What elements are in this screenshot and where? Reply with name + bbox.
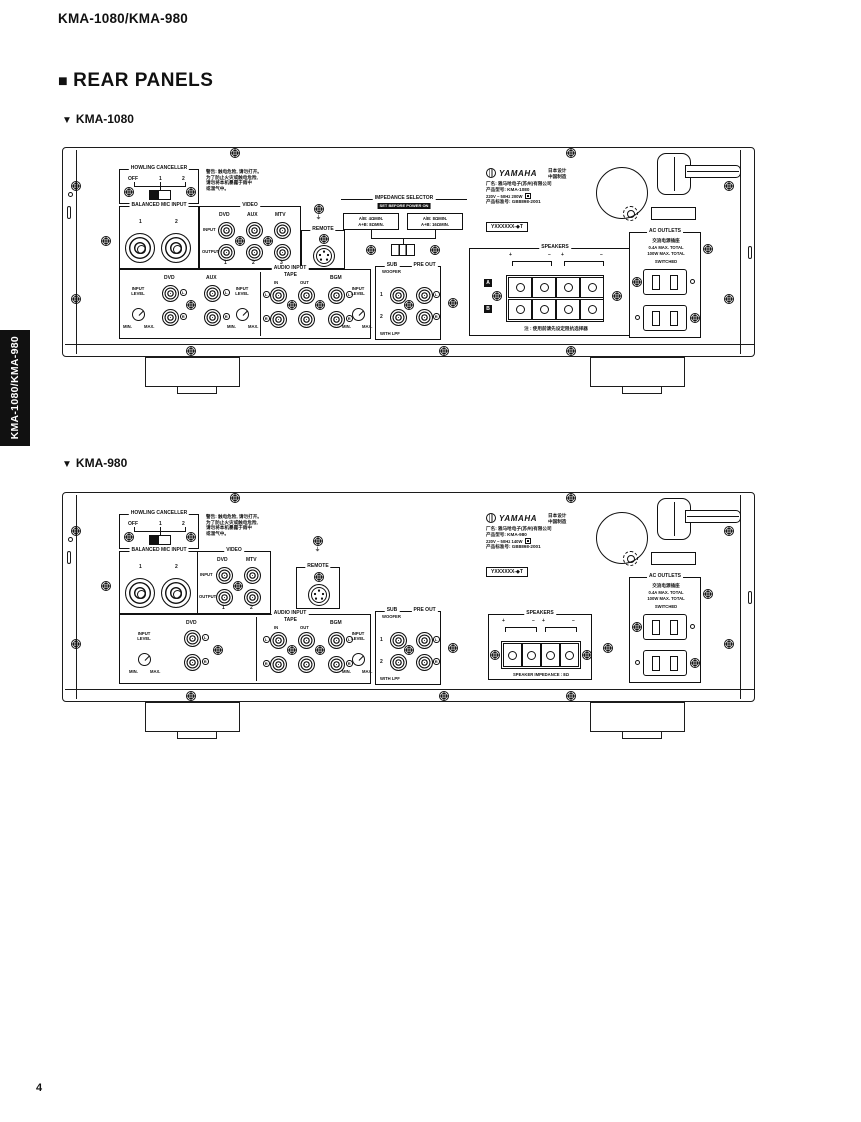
tape-out-jack-l bbox=[298, 632, 315, 649]
subwoofer-jack-2 bbox=[390, 654, 407, 671]
ground-screw-icon bbox=[313, 536, 323, 546]
min-label: MIN. bbox=[227, 324, 236, 329]
screw-icon bbox=[263, 236, 273, 246]
input-level-line: INPUT bbox=[236, 286, 249, 291]
polarity-bracket bbox=[545, 627, 577, 633]
subwoofer-preout-section: SUB WOOFER PRE OUT 1 2 L R WITH LPF bbox=[375, 266, 441, 340]
ac-switched-label: SWITCHED bbox=[630, 259, 702, 264]
square-bullet-icon: ■ bbox=[58, 73, 68, 90]
rail-slot bbox=[67, 551, 71, 564]
ac-max-power: 100W MAX. TOTAL bbox=[630, 251, 702, 256]
outlet-hole bbox=[690, 624, 695, 629]
mic-jack-1-label: 1 bbox=[139, 219, 142, 225]
input-level-line: INPUT bbox=[352, 286, 365, 291]
tape-in-jack-l bbox=[270, 287, 287, 304]
company-line: 厂名: 雅马哈电子(苏州)有限公司 bbox=[486, 181, 552, 187]
screw-icon bbox=[287, 645, 297, 655]
max-label: MAX. bbox=[248, 324, 258, 329]
impedance-note-badge: SET BEFORE POWER ON bbox=[378, 203, 431, 209]
speaker-terminal bbox=[508, 277, 532, 298]
bgm-input-level-knob bbox=[352, 653, 365, 666]
ground-symbol-icon: ⏚ bbox=[316, 215, 321, 221]
screw-icon bbox=[566, 691, 576, 701]
video-row-input: INPUT bbox=[203, 227, 216, 232]
mic-phone-jack-1 bbox=[125, 233, 155, 263]
sub-woofer-title: SUB bbox=[385, 263, 400, 268]
channel-l-marker: L bbox=[180, 289, 187, 296]
video-col-dvd: DVD bbox=[217, 557, 228, 563]
warning-line: 或湿气中。 bbox=[206, 186, 306, 192]
video-col-aux: AUX bbox=[247, 212, 258, 218]
speakers-section: SPEAKERS + − + − SPEAKER IMPEDANCE : 8Ω bbox=[488, 614, 592, 680]
screw-icon bbox=[230, 148, 240, 158]
channel-l-marker: L bbox=[202, 634, 209, 641]
rating-label: YAMAHA 日本设计 中国制造 厂名: 雅马哈电子(苏州)有限公司 产品型号:… bbox=[486, 168, 616, 238]
tape-in-jack-r bbox=[270, 656, 287, 673]
subwoofer-jack-1 bbox=[390, 287, 407, 304]
speaker-terminal bbox=[556, 299, 580, 320]
section-title-text: REAR PANELS bbox=[73, 70, 213, 91]
input-level-line: INPUT bbox=[132, 286, 145, 291]
video-output-jack bbox=[216, 589, 233, 606]
sub-woofer-title: SUB bbox=[385, 608, 400, 613]
cable-clamp-line bbox=[687, 171, 739, 172]
screw-icon bbox=[319, 234, 329, 244]
dvd-input-level-knob bbox=[138, 653, 151, 666]
preout-jack-l bbox=[416, 287, 433, 304]
screw-icon bbox=[314, 572, 324, 582]
screw-icon bbox=[366, 245, 376, 255]
switch-guide-line bbox=[185, 527, 186, 531]
video-output-jack bbox=[244, 589, 261, 606]
audio-col-tape: TAPE bbox=[284, 272, 297, 278]
impedance-option-right: A/B: 8ΩMIN. A+B: 16ΩMIN. bbox=[407, 213, 463, 230]
switch-guide-line bbox=[185, 182, 186, 186]
cable-clamp bbox=[643, 496, 753, 546]
speaker-terminal bbox=[532, 299, 556, 320]
input-level-line: LEVEL bbox=[351, 636, 365, 641]
audio-col-dvd: DVD bbox=[164, 275, 175, 281]
bgm-input-level-knob bbox=[352, 308, 365, 321]
audio-col-bgm: BGM bbox=[330, 275, 342, 281]
ac-outlet-2 bbox=[643, 305, 687, 331]
input-level-label: INPUTLEVEL bbox=[348, 286, 368, 297]
switch-pos-off: OFF bbox=[128, 176, 138, 182]
channel-r-marker: R bbox=[180, 313, 187, 320]
screw-icon bbox=[490, 650, 500, 660]
subwoofer-1-label: 1 bbox=[380, 637, 383, 643]
mic-phone-jack-2 bbox=[161, 233, 191, 263]
screw-icon bbox=[101, 236, 111, 246]
screw-icon bbox=[492, 291, 502, 301]
howling-canceller-section: HOWLING CANCELLER OFF 1 2 bbox=[119, 514, 199, 549]
screw-icon bbox=[233, 581, 243, 591]
balanced-mic-input-title: BALANCED MIC INPUT bbox=[130, 548, 189, 553]
screw-icon bbox=[430, 245, 440, 255]
screw-icon bbox=[186, 691, 196, 701]
subwoofer-jack-1 bbox=[390, 632, 407, 649]
video-output-jack bbox=[274, 244, 291, 261]
screw-icon bbox=[690, 313, 700, 323]
outlet-hole bbox=[690, 279, 695, 284]
polarity-bracket bbox=[505, 627, 537, 633]
switch-guide-line bbox=[134, 182, 135, 186]
input-level-line: LEVEL bbox=[351, 291, 365, 296]
with-lpf-label: WITH LPF bbox=[380, 331, 400, 336]
yamaha-logo-icon bbox=[486, 168, 496, 178]
screw-icon bbox=[690, 658, 700, 668]
sidebar-model-tab: KMA-1080/KMA-980 bbox=[0, 330, 30, 446]
sub-woofer-title2: WOOFER bbox=[382, 269, 401, 274]
mic-jack-2-label: 2 bbox=[175, 219, 178, 225]
video-section: VIDEO DVD AUX MTV INPUT OUTPUT 1 2 3 bbox=[199, 206, 301, 269]
ac-max-current: 0.4A MAX. TOTAL bbox=[630, 245, 702, 250]
impedance-guide-line bbox=[435, 230, 436, 238]
channel-r-marker: R bbox=[433, 658, 440, 665]
subwoofer-1-label: 1 bbox=[380, 292, 383, 298]
bgm-audio-jack-l bbox=[328, 287, 345, 304]
speakers-section: SPEAKERS + − + − A B 注 : 使用前请先设定阻抗选择器 bbox=[469, 248, 641, 336]
video-row-input: INPUT bbox=[200, 572, 213, 577]
channel-l-marker: L bbox=[433, 291, 440, 298]
polarity-bracket bbox=[512, 261, 552, 267]
remote-section: REMOTE bbox=[301, 230, 345, 269]
speaker-terminal bbox=[580, 277, 604, 298]
foot bbox=[590, 357, 685, 387]
cable-clamp-line bbox=[674, 157, 675, 191]
ac-max-power: 100W MAX. TOTAL bbox=[630, 596, 702, 601]
speaker-terminal bbox=[532, 277, 556, 298]
balanced-mic-input-section: BALANCED MIC INPUT 1 2 bbox=[119, 551, 199, 614]
channel-l-marker: L bbox=[433, 636, 440, 643]
polarity-bracket bbox=[564, 261, 604, 267]
vent-hole bbox=[596, 167, 648, 219]
max-label: MAX. bbox=[144, 324, 154, 329]
tape-out-jack-r bbox=[298, 656, 315, 673]
screw-icon bbox=[566, 493, 576, 503]
impedance-selector-section: IMPEDANCE SELECTOR SET BEFORE POWER ON A… bbox=[341, 196, 467, 258]
channel-r-marker: R bbox=[433, 313, 440, 320]
audio-col-aux: AUX bbox=[206, 275, 217, 281]
sub-woofer-title2: WOOFER bbox=[382, 614, 401, 619]
panel-label-text: KMA-1080 bbox=[76, 112, 134, 126]
channel-r-marker: R bbox=[202, 658, 209, 665]
page-header: KMA-1080/KMA-980 bbox=[58, 11, 188, 26]
polarity-minus: − bbox=[600, 252, 603, 258]
screw-icon bbox=[124, 187, 134, 197]
brand-wordmark: YAMAHA bbox=[499, 514, 537, 523]
foot bbox=[145, 702, 240, 732]
polarity-plus: + bbox=[561, 252, 564, 258]
screw-icon bbox=[724, 294, 734, 304]
subwoofer-2-label: 2 bbox=[380, 659, 383, 665]
video-row-output: OUTPUT bbox=[199, 594, 216, 599]
video-output-jack bbox=[218, 244, 235, 261]
screw-icon bbox=[612, 291, 622, 301]
chassis-outline: HOWLING CANCELLER OFF 1 2 警告: 触电危险, 请勿打开… bbox=[62, 492, 755, 702]
ac-outlets-section: AC OUTLETS 交流电源插座 0.4A MAX. TOTAL 100W M… bbox=[629, 232, 701, 338]
screw-icon bbox=[632, 622, 642, 632]
screw-icon bbox=[315, 645, 325, 655]
ac-switched-label: SWITCHED bbox=[630, 604, 702, 609]
min-label: MIN. bbox=[342, 324, 351, 329]
video-output-jack bbox=[246, 244, 263, 261]
divider-line bbox=[260, 272, 261, 336]
mic-jack-2-label: 2 bbox=[175, 564, 178, 570]
switch-pos-off: OFF bbox=[128, 521, 138, 527]
screw-icon bbox=[448, 298, 458, 308]
tape-in-label: IN bbox=[274, 625, 278, 630]
impedance-option-line: A+B: 16ΩMIN. bbox=[408, 222, 462, 228]
sidebar-model-tab-text: KMA-1080/KMA-980 bbox=[9, 336, 21, 439]
ac-outlet-1 bbox=[643, 614, 687, 640]
screw-icon bbox=[703, 244, 713, 254]
input-level-line: LEVEL bbox=[131, 291, 145, 296]
screw-icon bbox=[186, 346, 196, 356]
screw-icon bbox=[101, 581, 111, 591]
aux-input-level-knob bbox=[236, 308, 249, 321]
video-out-2: 2 bbox=[252, 260, 255, 266]
screw-icon bbox=[71, 526, 81, 536]
tape-out-jack-r bbox=[298, 311, 315, 328]
video-row-output: OUTPUT bbox=[202, 249, 219, 254]
rail-slot bbox=[67, 206, 71, 219]
dvd-audio-jack-r bbox=[162, 309, 179, 326]
video-out-2: 2 bbox=[250, 605, 253, 611]
channel-r-marker: R bbox=[223, 313, 230, 320]
vent-hole bbox=[596, 512, 648, 564]
page-number: 4 bbox=[36, 1082, 42, 1094]
outlet-hole bbox=[635, 315, 640, 320]
input-level-label: INPUTLEVEL bbox=[348, 631, 368, 642]
polarity-minus: − bbox=[532, 618, 535, 624]
preout-jack-r bbox=[416, 654, 433, 671]
rail-hole bbox=[68, 537, 73, 542]
ac-outlet-1 bbox=[643, 269, 687, 295]
audio-input-title: AUDIO INPUT bbox=[272, 266, 309, 271]
screw-icon bbox=[703, 589, 713, 599]
polarity-plus: + bbox=[509, 252, 512, 258]
balanced-mic-input-section: BALANCED MIC INPUT 1 2 bbox=[119, 206, 199, 269]
screw-icon bbox=[566, 346, 576, 356]
rail-slot bbox=[748, 246, 752, 259]
section-title: ■REAR PANELS bbox=[58, 70, 213, 92]
aux-audio-jack-r bbox=[204, 309, 221, 326]
panel-label-text: KMA-980 bbox=[76, 456, 127, 470]
blank-label bbox=[651, 207, 696, 220]
speaker-terminal bbox=[541, 643, 560, 667]
blank-label bbox=[651, 552, 696, 565]
screw-icon bbox=[287, 300, 297, 310]
screw-icon bbox=[124, 532, 134, 542]
foot-pad bbox=[177, 386, 217, 394]
video-section: VIDEO DVD MTV INPUT OUTPUT 1 2 bbox=[197, 551, 271, 614]
input-level-line: INPUT bbox=[138, 631, 151, 636]
audio-col-dvd: DVD bbox=[186, 620, 197, 626]
kma980-rear-panel-diagram: HOWLING CANCELLER OFF 1 2 警告: 触电危险, 请勿打开… bbox=[62, 492, 759, 744]
speaker-terminal bbox=[556, 277, 580, 298]
video-col-dvd: DVD bbox=[219, 212, 230, 218]
channel-r-marker: R bbox=[263, 660, 270, 667]
made-in-line: 中国制造 bbox=[548, 519, 566, 525]
ac-outlets-title: AC OUTLETS bbox=[647, 229, 683, 234]
safety-warning-text: 警告: 触电危险, 请勿打开。 为了防止火灾或触电危险, 请勿将本机暴露于雨中 … bbox=[206, 169, 306, 192]
with-lpf-label: WITH LPF bbox=[380, 676, 400, 681]
speaker-group-a-label: A bbox=[484, 279, 492, 287]
speaker-terminal bbox=[522, 643, 541, 667]
kma1080-rear-panel-diagram: HOWLING CANCELLER OFF 1 2 警告: 触电危险, 请勿打开… bbox=[62, 147, 759, 399]
cable-clamp-line bbox=[674, 502, 675, 536]
max-label: MAX. bbox=[362, 324, 372, 329]
speaker-terminal bbox=[508, 299, 532, 320]
howling-canceller-title: HOWLING CANCELLER bbox=[129, 511, 189, 516]
audio-input-section: AUDIO INPUT INPUTLEVEL MIN. MAX. DVD L R… bbox=[119, 269, 371, 339]
video-input-jack bbox=[218, 222, 235, 239]
bottom-strip-line bbox=[65, 689, 754, 690]
subwoofer-2-label: 2 bbox=[380, 314, 383, 320]
ac-outlets-cjk: 交流电源插座 bbox=[630, 583, 702, 589]
foot-pad bbox=[622, 731, 662, 739]
channel-r-marker: R bbox=[263, 315, 270, 322]
screw-icon bbox=[71, 181, 81, 191]
video-title: VIDEO bbox=[224, 548, 244, 553]
preout-jack-l bbox=[416, 632, 433, 649]
howling-canceller-switch bbox=[149, 535, 171, 545]
serial-number-label: YXXXXXX-◆T bbox=[486, 567, 528, 577]
video-input-jack bbox=[244, 567, 261, 584]
made-in-line: 中国制造 bbox=[548, 174, 566, 180]
model-line: 产品型号: KMA-980 bbox=[486, 532, 527, 538]
screw-icon bbox=[404, 645, 414, 655]
video-title: VIDEO bbox=[240, 203, 260, 208]
input-level-label: INPUTLEVEL bbox=[128, 286, 148, 297]
divider-line bbox=[256, 617, 257, 681]
dvd-audio-jack-l bbox=[184, 630, 201, 647]
foot-pad bbox=[622, 386, 662, 394]
screw-icon bbox=[230, 493, 240, 503]
standard-line: 产品标准号: GB8898-2001 bbox=[486, 544, 541, 550]
screw-icon bbox=[71, 294, 81, 304]
howling-canceller-switch bbox=[149, 190, 171, 200]
video-out-1: 1 bbox=[222, 605, 225, 611]
tape-in-jack-l bbox=[270, 632, 287, 649]
cable-clamp-line bbox=[687, 516, 739, 517]
mic-phone-jack-2 bbox=[161, 578, 191, 608]
screw-icon bbox=[315, 300, 325, 310]
panel-label-kma980: ▼KMA-980 bbox=[62, 456, 127, 470]
screw-icon bbox=[186, 187, 196, 197]
polarity-minus: − bbox=[548, 252, 551, 258]
ac-outlets-section: AC OUTLETS 交流电源插座 0.4A MAX. TOTAL 100W M… bbox=[629, 577, 701, 683]
impedance-selector-title: IMPEDANCE SELECTOR bbox=[373, 196, 436, 201]
video-col-mtv: MTV bbox=[246, 557, 257, 563]
min-label: MIN. bbox=[123, 324, 132, 329]
company-line: 厂名: 雅马哈电子(苏州)有限公司 bbox=[486, 526, 552, 532]
remote-title: REMOTE bbox=[310, 227, 335, 232]
screw-icon bbox=[632, 277, 642, 287]
video-out-1: 1 bbox=[224, 260, 227, 266]
balanced-mic-input-title: BALANCED MIC INPUT bbox=[130, 203, 189, 208]
polarity-minus: − bbox=[572, 618, 575, 624]
impedance-guide-line bbox=[371, 230, 372, 238]
speaker-group-b-label: B bbox=[484, 305, 492, 313]
min-label: MIN. bbox=[129, 669, 138, 674]
screw-icon bbox=[566, 148, 576, 158]
impedance-selector-switch bbox=[391, 244, 415, 256]
pre-out-title: PRE OUT bbox=[412, 608, 438, 613]
tape-in-jack-r bbox=[270, 311, 287, 328]
chassis-outline: HOWLING CANCELLER OFF 1 2 警告: 触电危险, 请勿打开… bbox=[62, 147, 755, 357]
outlet-hole bbox=[635, 660, 640, 665]
screw-icon bbox=[404, 300, 414, 310]
dvd-audio-jack-r bbox=[184, 654, 201, 671]
triangle-marker-icon: ▼ bbox=[62, 115, 72, 126]
dvd-audio-jack-l bbox=[162, 285, 179, 302]
polarity-plus: + bbox=[502, 618, 505, 624]
screw-icon bbox=[186, 532, 196, 542]
impedance-option-line: A+B: 8ΩMIN. bbox=[344, 222, 398, 228]
impedance-option-left: A/B: 4ΩMIN. A+B: 8ΩMIN. bbox=[343, 213, 399, 230]
screw-icon bbox=[439, 691, 449, 701]
subwoofer-preout-section: SUB WOOFER PRE OUT 1 2 L R WITH LPF bbox=[375, 611, 441, 685]
input-level-line: LEVEL bbox=[137, 636, 151, 641]
safety-mark-icon bbox=[623, 551, 638, 566]
preout-jack-r bbox=[416, 309, 433, 326]
panel-label-kma1080: ▼KMA-1080 bbox=[62, 112, 134, 126]
foot bbox=[145, 357, 240, 387]
speakers-caption: 注 : 使用前请先设定阻抗选择器 bbox=[470, 326, 642, 332]
pre-out-title: PRE OUT bbox=[412, 263, 438, 268]
rail-hole bbox=[68, 192, 73, 197]
screw-icon bbox=[213, 645, 223, 655]
input-level-line: LEVEL bbox=[235, 291, 249, 296]
safety-mark-icon bbox=[623, 206, 638, 221]
subwoofer-jack-2 bbox=[390, 309, 407, 326]
ac-outlet-2 bbox=[643, 650, 687, 676]
speaker-terminal bbox=[580, 299, 604, 320]
ac-outlets-title: AC OUTLETS bbox=[647, 574, 683, 579]
input-level-line: INPUT bbox=[352, 631, 365, 636]
audio-input-section: AUDIO INPUT DVD INPUTLEVEL MIN. MAX. L R… bbox=[119, 614, 371, 684]
rating-label: YAMAHA 日本设计 中国制造 厂名: 雅马哈电子(苏州)有限公司 产品型号:… bbox=[486, 513, 616, 583]
tape-out-jack-l bbox=[298, 287, 315, 304]
remote-din-connector bbox=[313, 245, 335, 267]
tape-in-label: IN bbox=[274, 280, 278, 285]
ac-outlets-cjk: 交流电源插座 bbox=[630, 238, 702, 244]
howling-canceller-section: HOWLING CANCELLER OFF 1 2 bbox=[119, 169, 199, 204]
polarity-plus: + bbox=[542, 618, 545, 624]
rail-slot bbox=[748, 591, 752, 604]
channel-l-marker: L bbox=[223, 289, 230, 296]
standard-line: 产品标准号: GB8898-2001 bbox=[486, 199, 541, 205]
speakers-title: SPEAKERS bbox=[524, 611, 556, 616]
audio-input-title: AUDIO INPUT bbox=[272, 611, 309, 616]
screw-icon bbox=[71, 639, 81, 649]
max-label: MAX. bbox=[150, 669, 160, 674]
video-col-mtv: MTV bbox=[275, 212, 286, 218]
dvd-input-level-knob bbox=[132, 308, 145, 321]
mic-phone-jack-1 bbox=[125, 578, 155, 608]
input-level-label: INPUTLEVEL bbox=[134, 631, 154, 642]
screw-icon bbox=[582, 650, 592, 660]
input-level-label: INPUTLEVEL bbox=[232, 286, 252, 297]
screw-icon bbox=[186, 300, 196, 310]
mic-jack-1-label: 1 bbox=[139, 564, 142, 570]
speaker-terminal bbox=[560, 643, 579, 667]
screw-icon bbox=[439, 346, 449, 356]
ac-max-current: 0.4A MAX. TOTAL bbox=[630, 590, 702, 595]
remote-section: REMOTE bbox=[296, 567, 340, 609]
